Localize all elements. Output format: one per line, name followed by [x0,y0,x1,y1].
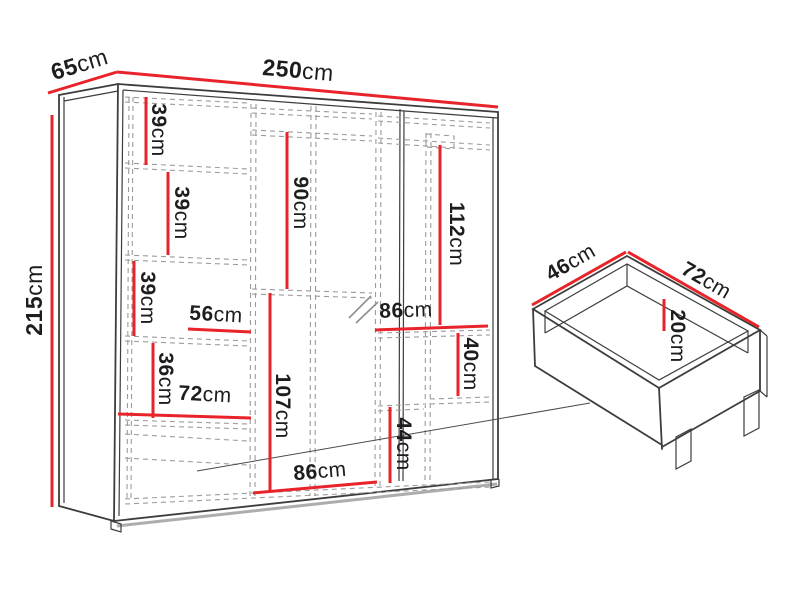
mirror-icon [349,296,378,323]
dimension-label-right-height-40: 40cm [459,337,482,390]
dimension-label-left-width-56: 56cm [189,301,243,327]
dimension-label-middle-width-86: 86cm [292,457,347,485]
dimension-label-depth: 65cm [48,43,111,85]
dimension-label-drawer-height-20: 20cm [666,309,689,362]
dimension-label-width: 250cm [261,54,335,86]
dimension-label-left-width-72: 72cm [178,381,232,407]
wardrobe-outline [59,84,499,532]
dimension-label-left-shelf-3: 39cm [136,271,159,324]
dim-line-left-width-72 [118,414,251,418]
dimension-label-left-shelf-1: 39cm [147,103,170,156]
dimension-label-middle-height-107: 107cm [271,373,294,439]
diagram-canvas: 65cm250cm215cm39cm39cm39cm56cm36cm72cm90… [0,0,800,600]
dim-line-left-width-56 [188,329,251,332]
drawer-foot-right [744,390,759,436]
dimension-label-height: 215cm [21,264,47,336]
dimension-label-right-height-112: 112cm [445,202,468,266]
diagram-page: 65cm250cm215cm39cm39cm39cm56cm36cm72cm90… [0,0,800,600]
wardrobe-drawing [59,84,499,532]
dimension-label-right-height-44: 44cm [392,417,415,470]
wardrobe-interior-shelves-dashed [125,97,490,504]
dimension-label-left-shelf-2: 39cm [170,186,193,239]
dim-line-middle-width-86 [253,482,377,493]
dimension-label-middle-height-90: 90cm [289,176,312,229]
dimension-label-drawer-depth-46: 46cm [542,239,600,286]
dimension-label-left-shelf-36: 36cm [154,352,177,405]
dim-line-right-width-86 [375,326,488,330]
dimension-label-right-width-86: 86cm [379,298,433,323]
